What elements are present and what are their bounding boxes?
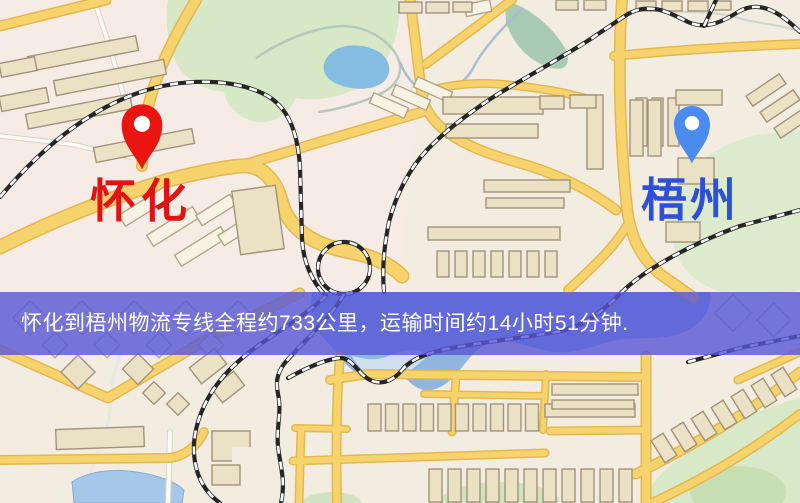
map-canvas [0,0,800,503]
logistics-route-map: 怀化 梧州 怀化到梧州物流专线全程约733公里，运输时间约14小时51分钟. [0,0,800,503]
destination-city-label: 梧州 [641,178,739,224]
route-info-banner: 怀化到梧州物流专线全程约733公里，运输时间约14小时51分钟. [0,292,800,355]
origin-city-label: 怀化 [90,178,192,224]
destination-pin-icon [669,101,715,167]
origin-pin-icon [116,99,168,173]
route-info-text: 怀化到梧州物流专线全程约733公里，运输时间约14小时51分钟. [21,312,629,335]
